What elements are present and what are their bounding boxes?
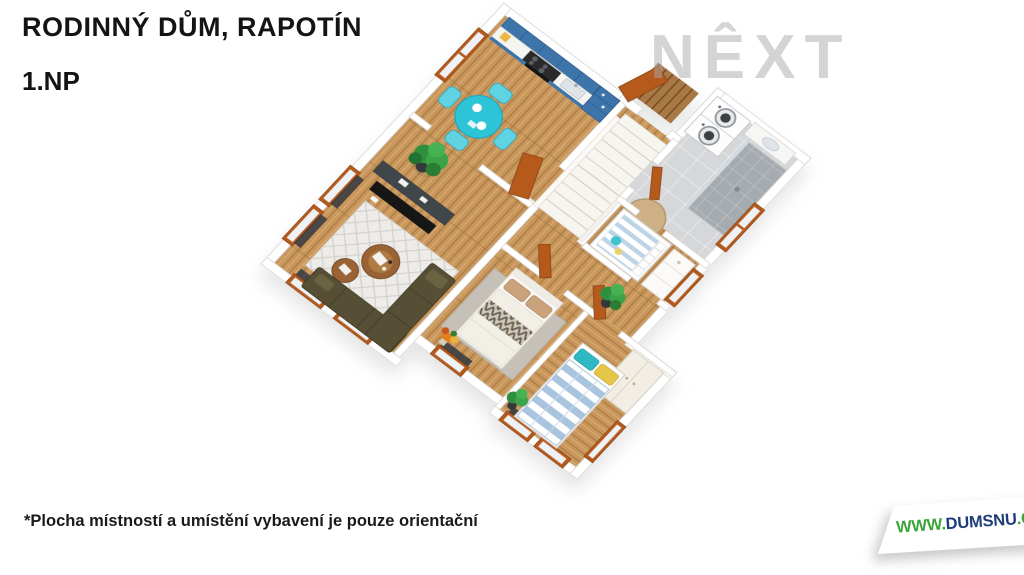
url-name: DUMSNU	[945, 510, 1017, 533]
url-suffix: .COM	[1016, 507, 1024, 528]
screenshot-root: RODINNÝ DŮM, RAPOTÍN 1.NP	[0, 0, 1024, 575]
website-ribbon: WWW.DUMSNU.COM	[860, 488, 1024, 568]
bedroom1-door	[538, 244, 551, 278]
url-prefix: WWW.	[896, 515, 947, 536]
